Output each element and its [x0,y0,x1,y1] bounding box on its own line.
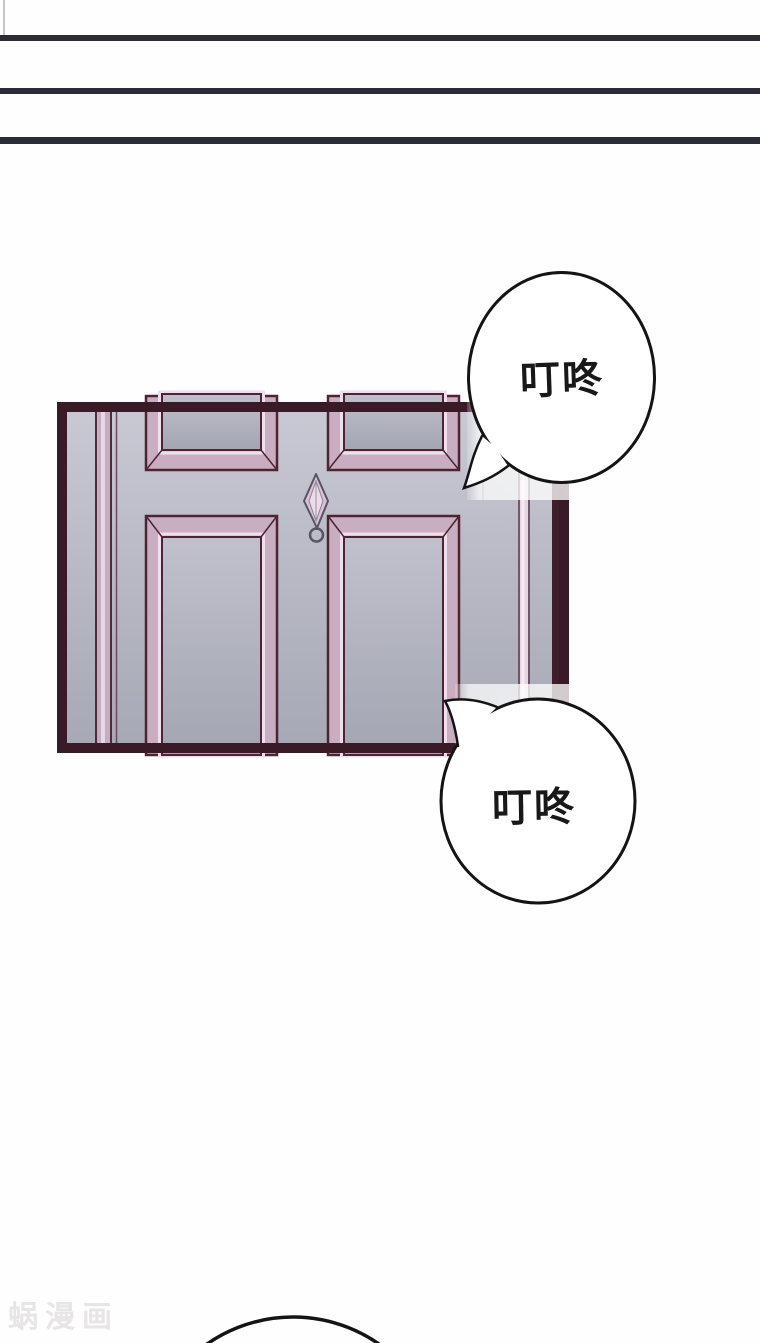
door-panel-bottom-left [146,516,277,756]
door-panel-bottom-right [328,516,459,756]
doorbell-sound-text-1: 叮咚 [476,355,647,405]
comic-page: 叮咚 叮咚 蜗漫画 [0,0,760,1343]
site-watermark: 蜗漫画 [8,1292,119,1336]
speech-bubble-partial-bottom [143,1317,443,1343]
door-scene-illustration [0,0,760,1343]
doorbell-sound-text-2: 叮咚 [449,785,620,832]
